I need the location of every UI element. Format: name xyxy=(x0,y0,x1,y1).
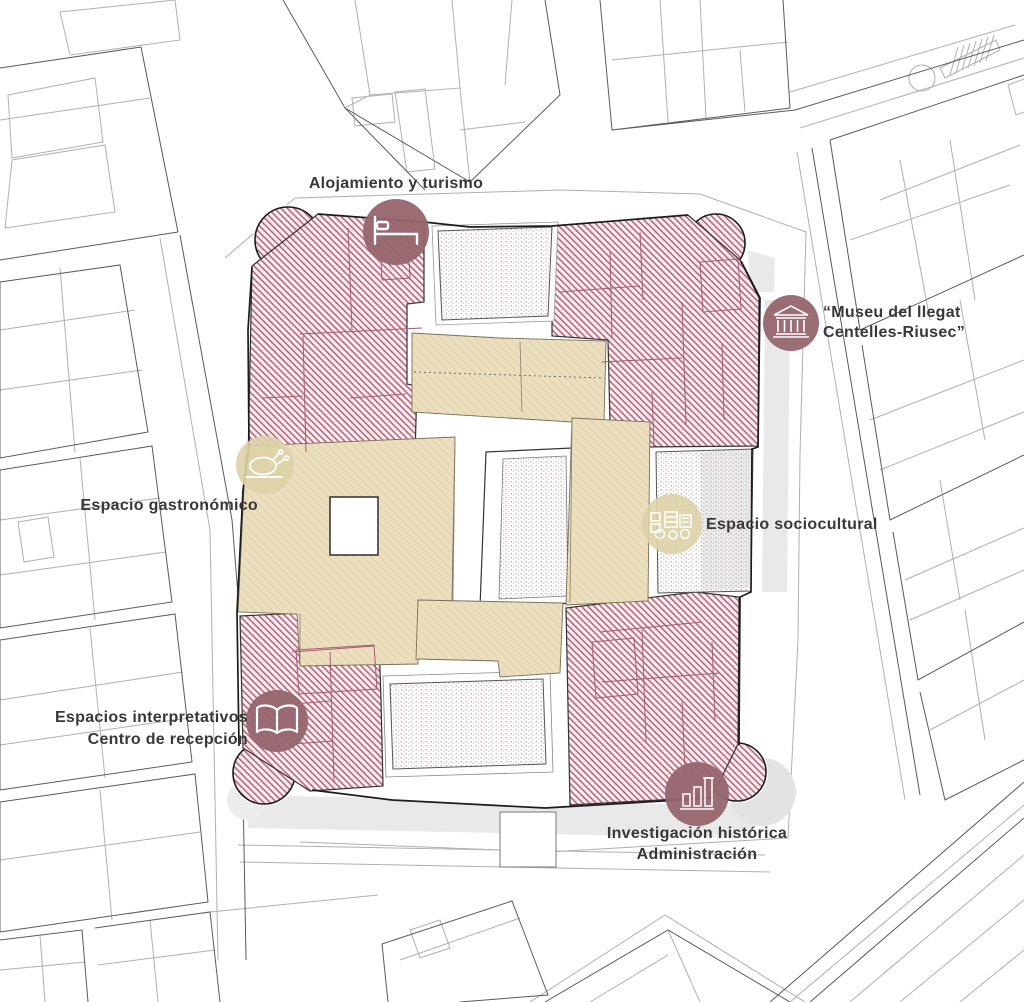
label-gastronomico: Espacio gastronómico xyxy=(80,497,258,514)
label-museu-line2: Centelles-Riusec” xyxy=(823,324,965,341)
badge-alojamiento xyxy=(363,199,429,265)
courtyard-bottom xyxy=(390,679,546,769)
label-investigacion-line2: Administración xyxy=(637,846,758,863)
inner-lightwell xyxy=(330,497,378,555)
badge-interpretativos xyxy=(246,690,308,752)
label-alojamiento: Alojamiento y turismo xyxy=(309,175,483,192)
site-plan-drawing: Alojamiento y turismo “Museu del llegat … xyxy=(0,0,1024,1002)
badge-gastronomico xyxy=(236,436,294,494)
badge-circle xyxy=(236,436,294,494)
badge-museu xyxy=(763,295,819,351)
courtyard-top xyxy=(438,227,552,320)
label-sociocultural: Espacio sociocultural xyxy=(706,516,878,533)
label-interpretativos-line2: Centro de recepción xyxy=(88,731,248,748)
badge-sociocultural xyxy=(642,494,702,554)
badge-investigacion xyxy=(665,762,729,826)
zone-tan-middle-column xyxy=(566,418,650,605)
badge-circle xyxy=(363,199,429,265)
label-investigacion-line1: Investigación histórica xyxy=(607,825,787,842)
badge-circle xyxy=(665,762,729,826)
label-museu-line1: “Museu del llegat xyxy=(823,304,961,321)
courtyard-central xyxy=(499,456,568,599)
label-interpretativos-line1: Espacios interpretativos xyxy=(55,709,248,726)
bottom-annex xyxy=(500,812,556,867)
site-plan-canvas: Alojamiento y turismo “Museu del llegat … xyxy=(0,0,1024,1002)
zone-tan-top-band xyxy=(412,333,606,424)
